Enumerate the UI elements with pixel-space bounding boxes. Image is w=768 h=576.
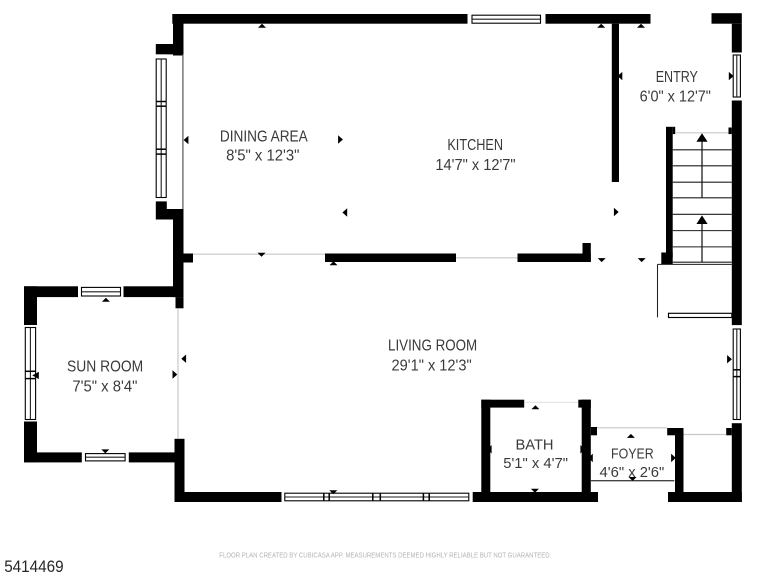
svg-text:5414469: 5414469 xyxy=(4,558,64,576)
svg-text:KITCHEN: KITCHEN xyxy=(447,137,503,154)
svg-text:29'1" x 12'3": 29'1" x 12'3" xyxy=(392,357,472,374)
svg-text:ENTRY: ENTRY xyxy=(656,69,698,86)
svg-text:FLOOR PLAN CREATED BY CUBICASA: FLOOR PLAN CREATED BY CUBICASA APP. MEAS… xyxy=(219,551,551,560)
svg-text:SUN ROOM: SUN ROOM xyxy=(67,359,143,376)
svg-text:5'1" x 4'7": 5'1" x 4'7" xyxy=(503,456,568,472)
svg-text:BATH: BATH xyxy=(515,437,553,453)
svg-text:14'7" x 12'7": 14'7" x 12'7" xyxy=(435,157,515,174)
svg-text:8'5" x 12'3": 8'5" x 12'3" xyxy=(226,147,299,164)
svg-text:4'6" x 2'6": 4'6" x 2'6" xyxy=(600,465,665,481)
svg-text:6'0" x 12'7": 6'0" x 12'7" xyxy=(640,89,711,106)
svg-text:FOYER: FOYER xyxy=(611,447,654,463)
svg-text:7'5" x 8'4": 7'5" x 8'4" xyxy=(72,378,137,395)
svg-text:LIVING ROOM: LIVING ROOM xyxy=(388,338,477,355)
svg-text:DINING AREA: DINING AREA xyxy=(220,129,308,146)
